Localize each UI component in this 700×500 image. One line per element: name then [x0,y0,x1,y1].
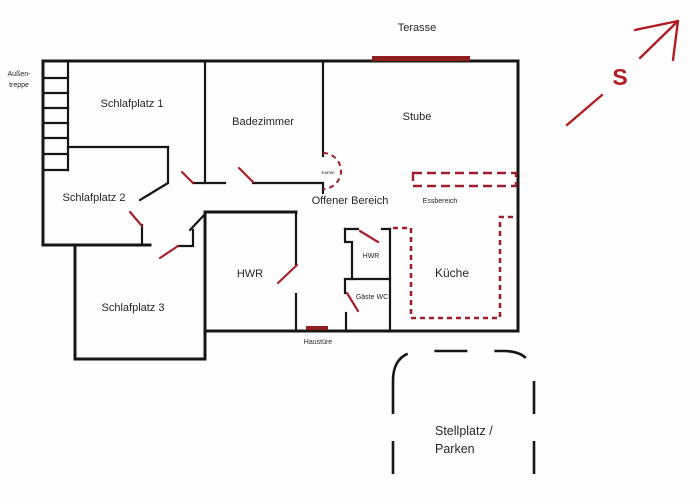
room-labels: Terasse Außen- treppe Schlafplatz 1 Bade… [8,22,470,346]
label-stellplatz-2: Parken [435,442,475,456]
fixtures [323,153,517,318]
label-hwr-small: HWR [363,253,380,260]
door-swing-badezimmer [239,168,253,182]
label-compass-south: S [612,64,627,90]
door-leaves [140,183,206,230]
label-gaeste-wc: Gäste WC [356,294,388,301]
door-swing-schlafplatz2 [182,172,193,183]
door-swing-hwr-small [360,231,378,242]
door-swing-hwr-main [278,265,297,283]
label-schlafplatz1: Schlafplatz 1 [101,98,164,110]
label-aussentreppe-1: Außen- [8,71,32,78]
door-swing-hall-west [130,212,142,226]
front-door-bar [306,326,328,330]
label-hwr-main: HWR [237,268,263,280]
label-kamin: Kamin [321,170,334,175]
label-stellplatz-1: Stellplatz / [435,424,493,438]
terrace-door-bar [372,56,470,61]
label-stube: Stube [403,111,432,123]
floorplan-svg: Terasse Außen- treppe Schlafplatz 1 Bade… [0,0,700,500]
label-haustuere: Haustüre [304,339,333,346]
label-kueche: Küche [435,266,469,280]
label-schlafplatz2: Schlafplatz 2 [63,192,126,204]
door-swings [130,168,378,311]
label-badezimmer: Badezimmer [232,116,294,128]
door-leaf-hall [140,183,168,200]
door-swing-schlafplatz3 [160,246,178,258]
label-aussentreppe-2: treppe [9,82,29,89]
essbereich-table [413,173,516,186]
staircase [43,61,68,170]
label-offener-bereich: Offener Bereich [312,195,389,207]
label-schlafplatz3: Schlafplatz 3 [102,302,165,314]
parking-labels: Stellplatz / Parken [435,424,493,456]
label-terasse: Terasse [398,22,437,34]
compass-shaft-lower [567,95,602,125]
label-essbereich: Essbereich [423,198,458,205]
floorplan-page: Terasse Außen- treppe Schlafplatz 1 Bade… [0,0,700,500]
